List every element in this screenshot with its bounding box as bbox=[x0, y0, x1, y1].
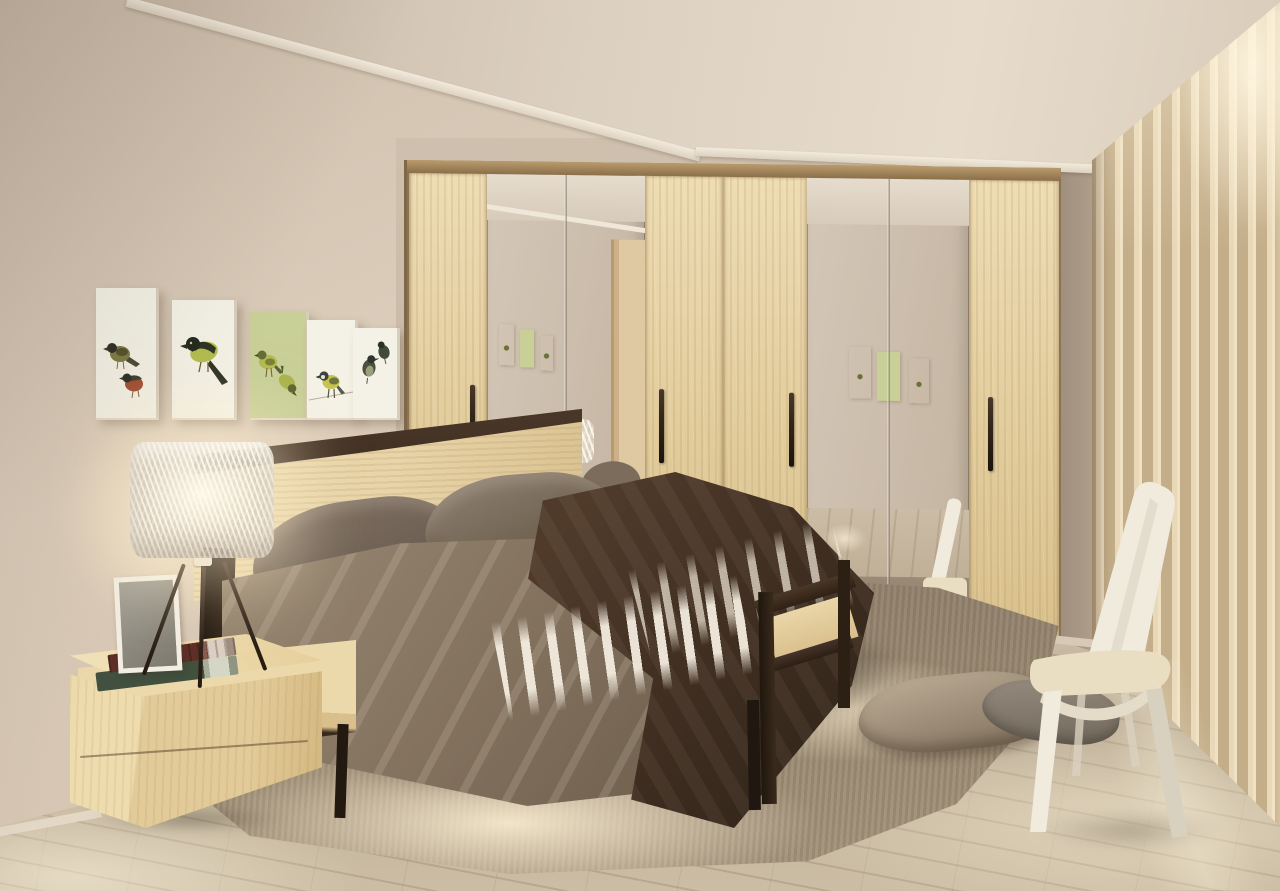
wardrobe-wood-door-1 bbox=[409, 173, 487, 638]
mirror-reflected-sunlight bbox=[815, 518, 875, 559]
mirror-reflected-lamp-legs bbox=[557, 463, 581, 503]
mirror-reflected-lamp bbox=[544, 419, 594, 464]
mirror-reflected-canvas bbox=[520, 329, 534, 367]
mirror-reflected-room-door bbox=[611, 240, 645, 570]
mirror-seam bbox=[887, 179, 890, 643]
wardrobe-handle-2 bbox=[659, 389, 664, 463]
mirror-reflected-canvas bbox=[499, 324, 514, 365]
bedroom-scene bbox=[0, 0, 1280, 891]
wardrobe-handle-1 bbox=[470, 385, 475, 459]
lamp-tripod-leg bbox=[222, 561, 267, 671]
mirror-reflected-canvas bbox=[849, 346, 871, 398]
mirror-reflected-canvas bbox=[909, 358, 929, 403]
wardrobe-wood-door-3 bbox=[723, 177, 807, 642]
wardrobe-mirror-doors-left bbox=[487, 174, 645, 640]
mirror-reflected-canvas bbox=[540, 336, 553, 371]
wardrobe-mirror-doors-right bbox=[807, 178, 969, 644]
lamp-shade bbox=[130, 442, 274, 558]
mirror-seam bbox=[564, 175, 567, 639]
table-lamp bbox=[126, 436, 296, 676]
chair-drawing bbox=[1000, 476, 1232, 864]
lamp-tripod-leg bbox=[198, 566, 206, 688]
lamp-tripod-leg bbox=[142, 563, 186, 675]
wardrobe-handle-4 bbox=[988, 397, 993, 471]
wardrobe-handle-3 bbox=[789, 393, 794, 467]
chair bbox=[1000, 476, 1232, 864]
